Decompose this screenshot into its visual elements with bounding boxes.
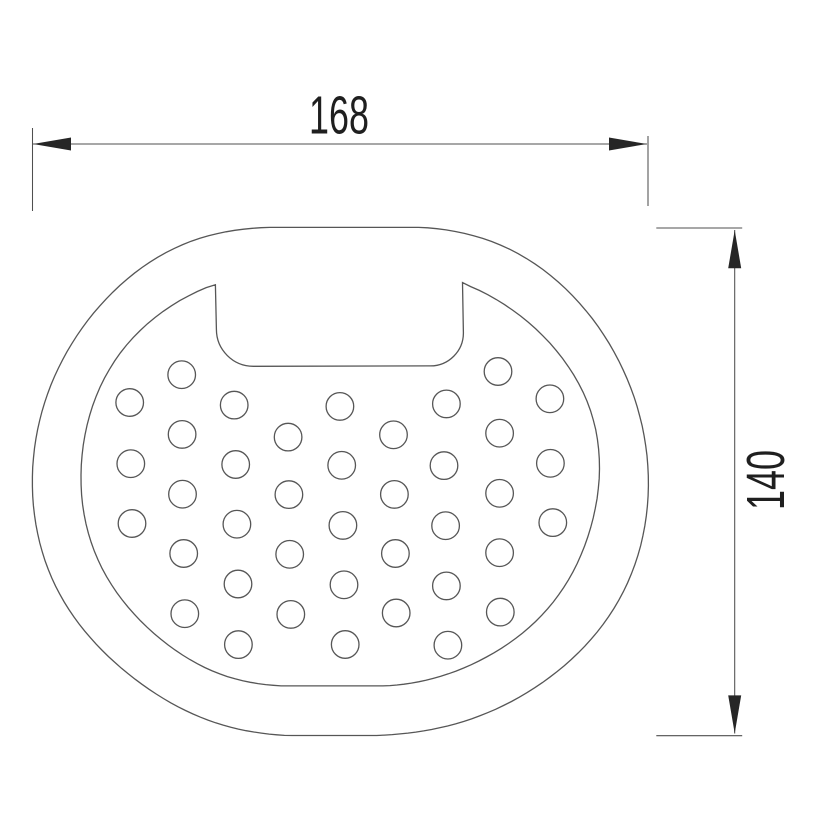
svg-text:168: 168 (309, 84, 369, 145)
svg-text:140: 140 (735, 450, 796, 510)
